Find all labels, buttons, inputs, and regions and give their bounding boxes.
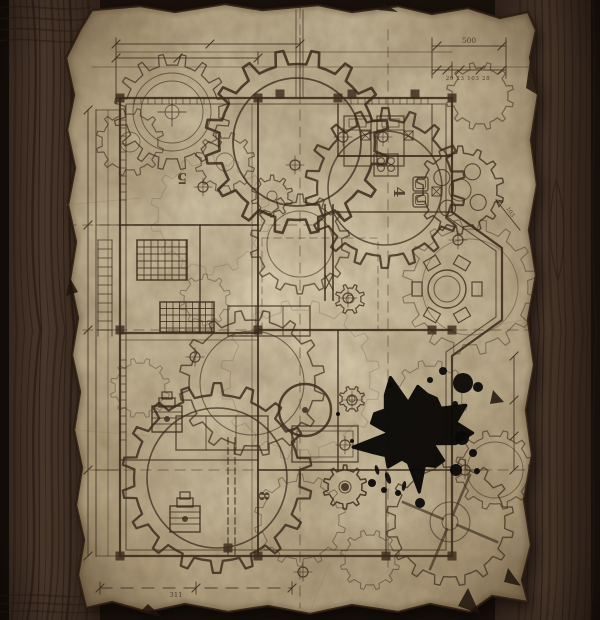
scene-canvas: 500 20 23 103 28 311 103 5 4 8 xyxy=(0,0,600,620)
game-scene: 500 20 23 103 28 311 103 5 4 8 xyxy=(0,0,600,620)
photo-vignette xyxy=(0,0,600,620)
